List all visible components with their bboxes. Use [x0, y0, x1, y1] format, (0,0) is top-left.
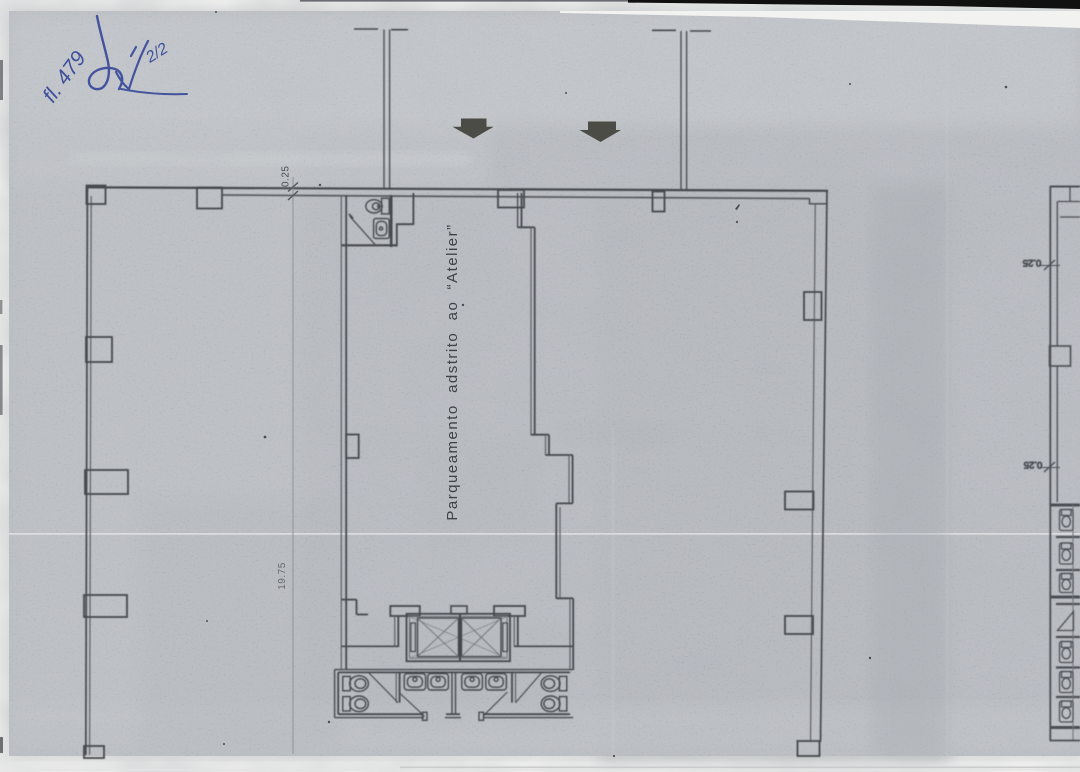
svg-text:19.75: 19.75: [277, 562, 288, 590]
svg-text:0.25: 0.25: [1024, 459, 1043, 470]
svg-text:0.25: 0.25: [281, 166, 292, 187]
svg-text:0.25: 0.25: [1023, 257, 1042, 268]
svg-text:Parqueamento adstrito ao “A: Parqueamento adstrito ao “Atelier”: [444, 223, 461, 520]
